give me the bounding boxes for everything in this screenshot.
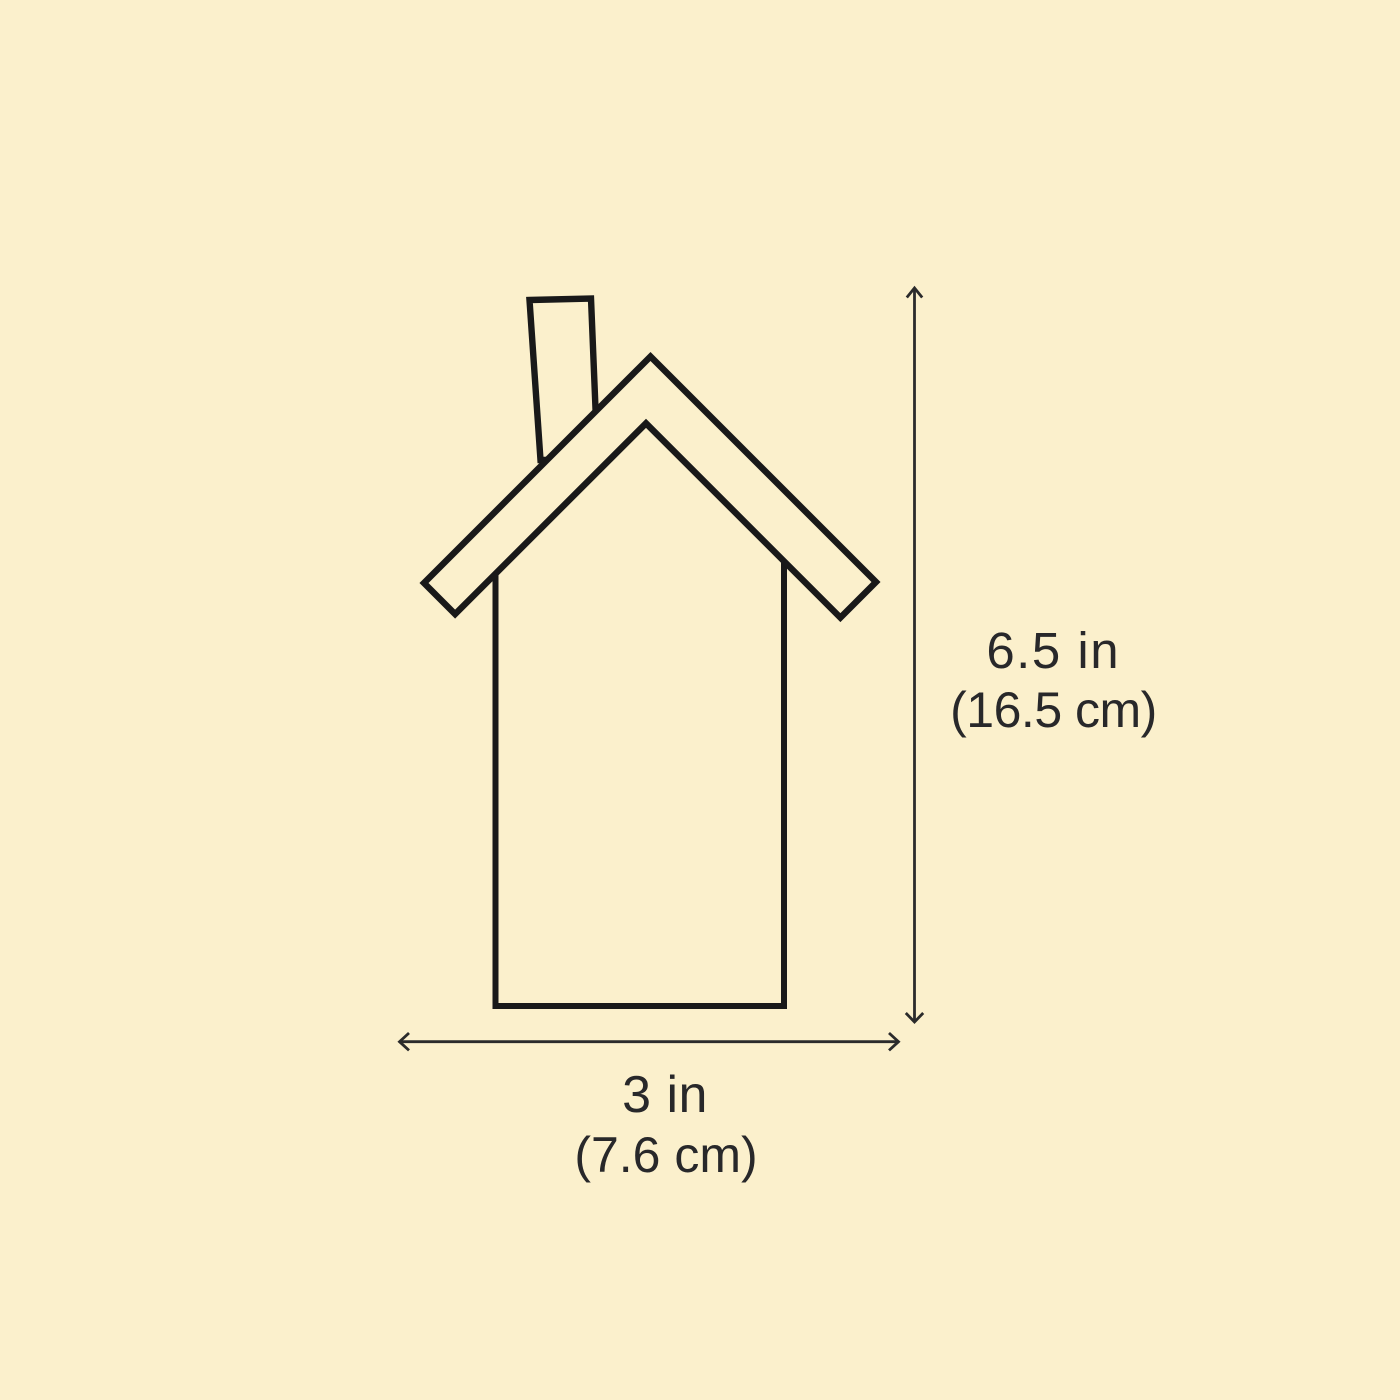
svg-text:3 in: 3 in [622,1066,708,1124]
svg-text:6.5 in: 6.5 in [986,622,1120,679]
svg-text:(7.6 cm): (7.6 cm) [574,1127,757,1183]
svg-text:(16.5 cm): (16.5 cm) [950,682,1157,738]
